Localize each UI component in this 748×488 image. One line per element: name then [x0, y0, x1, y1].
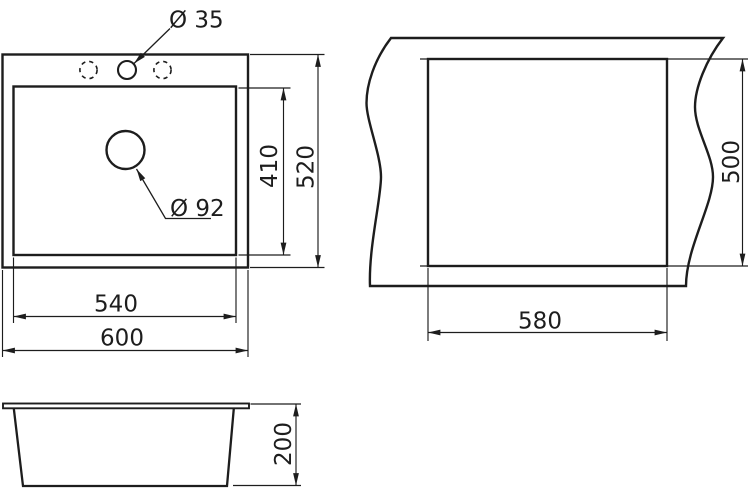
sink-side-view: 200: [3, 404, 301, 487]
leader-line: [134, 29, 170, 64]
dim-label-outer-depth: 520: [294, 145, 320, 189]
drain-hole-callout: Ø 92: [137, 169, 225, 222]
optional-faucet-hole-left: [80, 61, 97, 78]
cutout-extension-lines: [420, 59, 748, 266]
sink-bowl-outline: [14, 87, 237, 256]
dim-label-cutout-width: 580: [518, 309, 562, 335]
dimension-sink-height: 200: [233, 404, 301, 486]
dim-label-inner-depth: 410: [257, 144, 283, 188]
countertop-broken-outline: [367, 38, 724, 286]
optional-faucet-hole-right: [154, 61, 171, 78]
technical-drawing-sheet: Ø 35 Ø 92 410 520 540 600: [0, 0, 748, 488]
dimension-cutout-height: 500: [719, 59, 745, 266]
dim-label-drain-diameter: Ø 92: [170, 196, 225, 222]
faucet-hole: [118, 61, 136, 79]
drain-hole: [107, 131, 145, 169]
sink-dimension-drawing: Ø 35 Ø 92 410 520 540 600: [0, 0, 748, 488]
dim-label-cutout-height: 500: [719, 140, 745, 184]
dim-label-inner-width: 540: [94, 292, 138, 318]
countertop-cutout-view: 500 580: [367, 38, 748, 341]
dim-label-sink-height: 200: [271, 422, 297, 466]
dim-label-faucet-diameter: Ø 35: [169, 8, 224, 34]
dimension-cutout-width: 580: [428, 268, 667, 341]
dim-label-outer-width: 600: [100, 326, 144, 352]
rim-flange-outline: [3, 404, 249, 409]
bowl-profile-outline: [14, 409, 234, 487]
cutout-rectangle: [428, 59, 667, 266]
sink-top-view: Ø 35 Ø 92 410 520 540 600: [3, 8, 325, 358]
dimension-inner-depth: 410: [239, 88, 291, 255]
